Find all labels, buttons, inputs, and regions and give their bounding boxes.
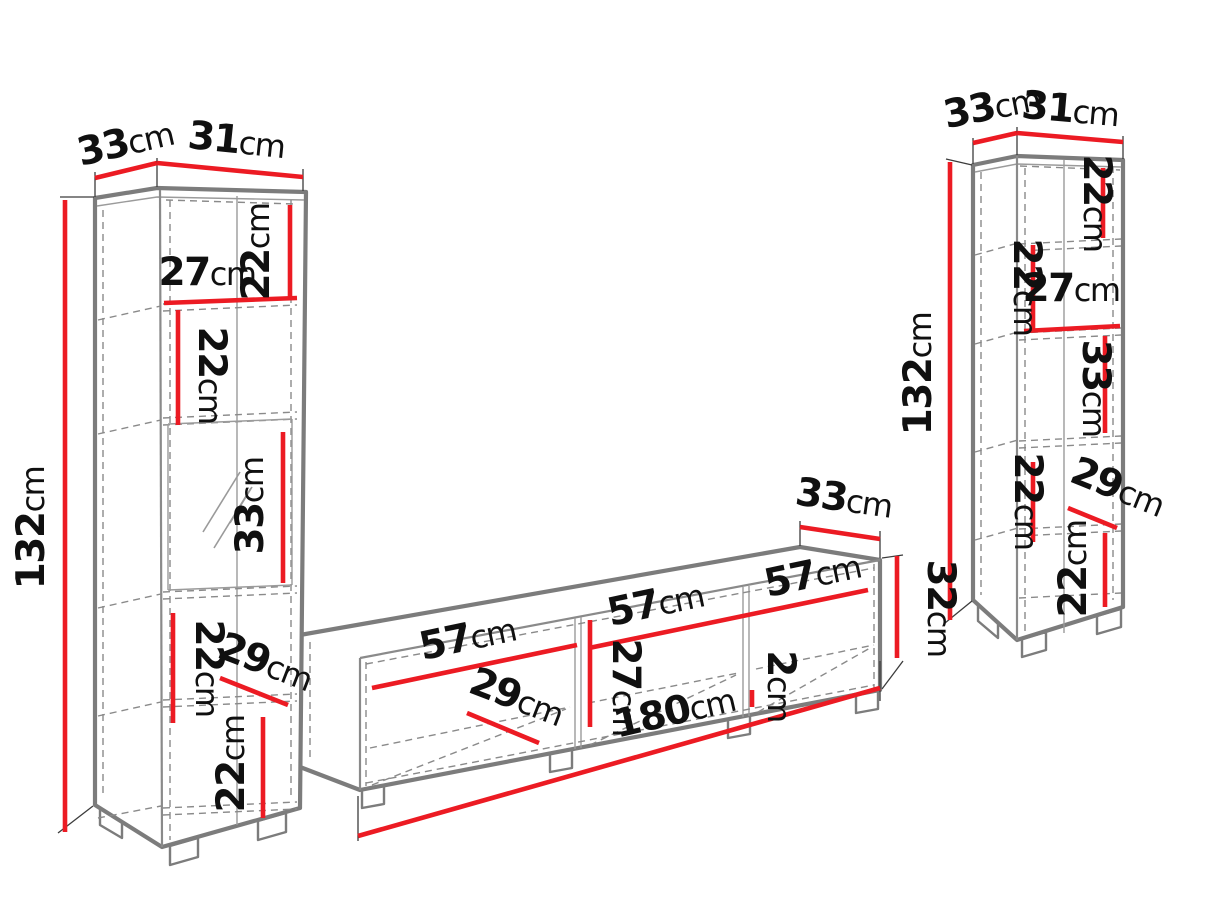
dim-label-left-section5: 22cm <box>209 715 254 812</box>
dim-label-right-section4: 22cm <box>1005 452 1050 549</box>
dim-label-right-height: 132cm <box>896 313 941 436</box>
dim-line-right-top-width <box>1017 133 1123 142</box>
diagram-canvas: 33cm 31cm 132cm 22cm 27cm 22cm 33cm 22cm… <box>0 0 1214 911</box>
dim-label-left-section2: 22cm <box>189 326 234 423</box>
dim-label-left-top-width: 31cm <box>186 113 287 168</box>
dim-label-left-innerwidth: 27cm <box>158 250 255 295</box>
dim-line-tv-depth <box>800 527 880 539</box>
dim-label-right-section1: 22cm <box>1074 154 1119 251</box>
dim-label-tv-base: 2cm <box>758 650 803 721</box>
dim-label-tv-depth: 33cm <box>793 470 895 528</box>
dim-label-left-glass: 33cm <box>228 457 273 554</box>
dim-label-left-height: 132cm <box>9 467 54 590</box>
dim-line-right-top-depth <box>973 133 1017 143</box>
dim-label-tv-height: 32cm <box>918 559 963 656</box>
dim-label-right-innerwidth: 27cm <box>1022 266 1119 311</box>
dim-label-right-top-width: 31cm <box>1020 83 1121 136</box>
furniture-dimension-diagram: 33cm 31cm 132cm 22cm 27cm 22cm 33cm 22cm… <box>0 0 1214 911</box>
dim-label-left-top-depth: 33cm <box>73 110 178 176</box>
dim-label-right-section3: 33cm <box>1073 339 1118 436</box>
dim-label-right-section5: 22cm <box>1051 520 1096 617</box>
